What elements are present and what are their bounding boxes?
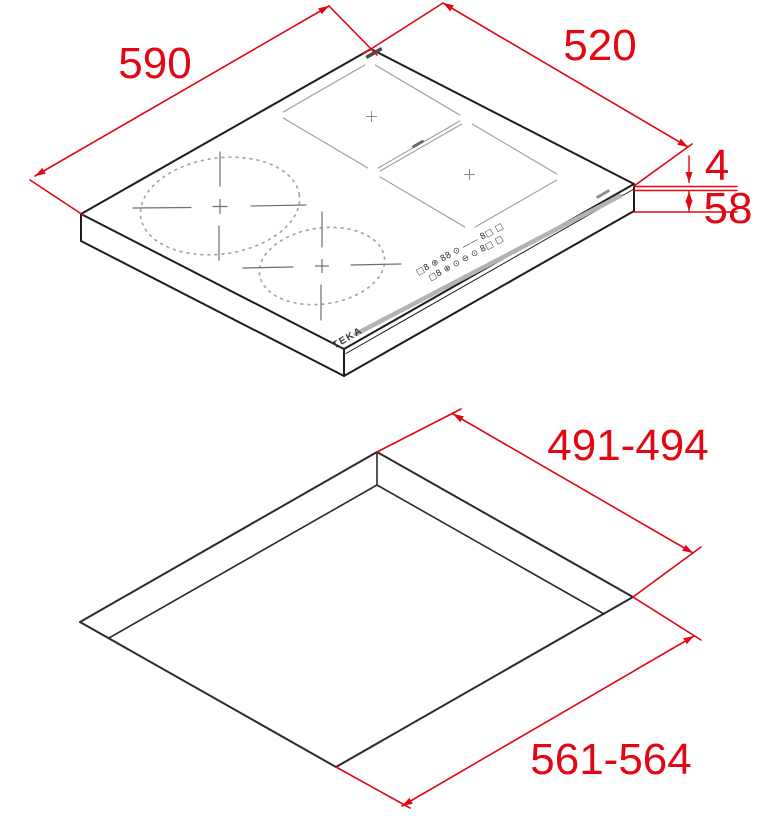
drawing-canvas: TEKA □8 ⊛ 88 ⊙ —— 8□ □ □8 ⊕ ⊙ ⊖ ⊙ 8□ □ 5…	[0, 0, 759, 827]
dimension-520-label: 520	[563, 21, 636, 70]
dimension-58-label: 58	[704, 184, 753, 233]
dimension-491-494-label: 491-494	[547, 421, 708, 470]
dimension-4-label: 4	[705, 141, 729, 190]
hob-top-view: TEKA □8 ⊛ 88 ⊙ —— 8□ □ □8 ⊕ ⊙ ⊖ ⊙ 8□ □ 5…	[30, 3, 752, 376]
dimension-590-label: 590	[118, 39, 191, 88]
worktop-cutout-view: 491-494 561-564	[80, 409, 709, 808]
glass-surface	[81, 49, 634, 349]
dimension-561-564-label: 561-564	[530, 735, 691, 784]
installation-drawing: TEKA □8 ⊛ 88 ⊙ —— 8□ □ □8 ⊕ ⊙ ⊖ ⊙ 8□ □ 5…	[0, 0, 759, 827]
